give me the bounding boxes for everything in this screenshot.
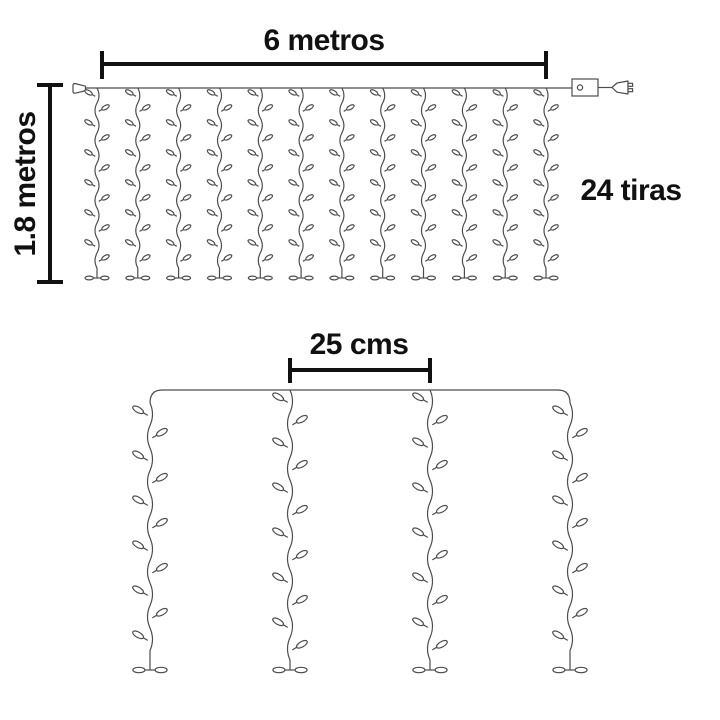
light-strand xyxy=(132,403,169,673)
light-strand xyxy=(84,88,110,280)
light-strand xyxy=(533,88,559,280)
light-strand xyxy=(206,88,232,280)
light-strand xyxy=(552,403,589,673)
light-strand xyxy=(492,88,518,280)
top-curtain-strands xyxy=(84,88,559,280)
light-strand xyxy=(125,88,151,280)
light-strand xyxy=(412,390,449,673)
light-strand xyxy=(451,88,477,280)
strand-spacing-label: 25 cms xyxy=(310,330,409,360)
curtain-lights-diagram: 6 metros 1.8 metros 24 tiras 25 cms xyxy=(0,0,720,720)
power-plug-icon xyxy=(598,81,633,94)
width-measurement-label: 6 metros xyxy=(263,26,384,56)
detail-top-wire xyxy=(150,390,570,403)
height-measurement-label: 1.8 metros xyxy=(11,111,41,256)
strip-count-label: 24 tiras xyxy=(580,176,681,206)
light-strand xyxy=(410,88,436,280)
spacing-dimension-line xyxy=(290,358,430,383)
light-strand xyxy=(166,88,192,280)
light-strand xyxy=(247,88,273,280)
connector-icon xyxy=(73,84,86,94)
light-strand xyxy=(288,88,314,280)
light-strand xyxy=(370,88,396,280)
detail-strands xyxy=(132,390,589,673)
light-strand xyxy=(329,88,355,280)
controller-box xyxy=(572,79,598,96)
light-strand xyxy=(272,390,309,673)
